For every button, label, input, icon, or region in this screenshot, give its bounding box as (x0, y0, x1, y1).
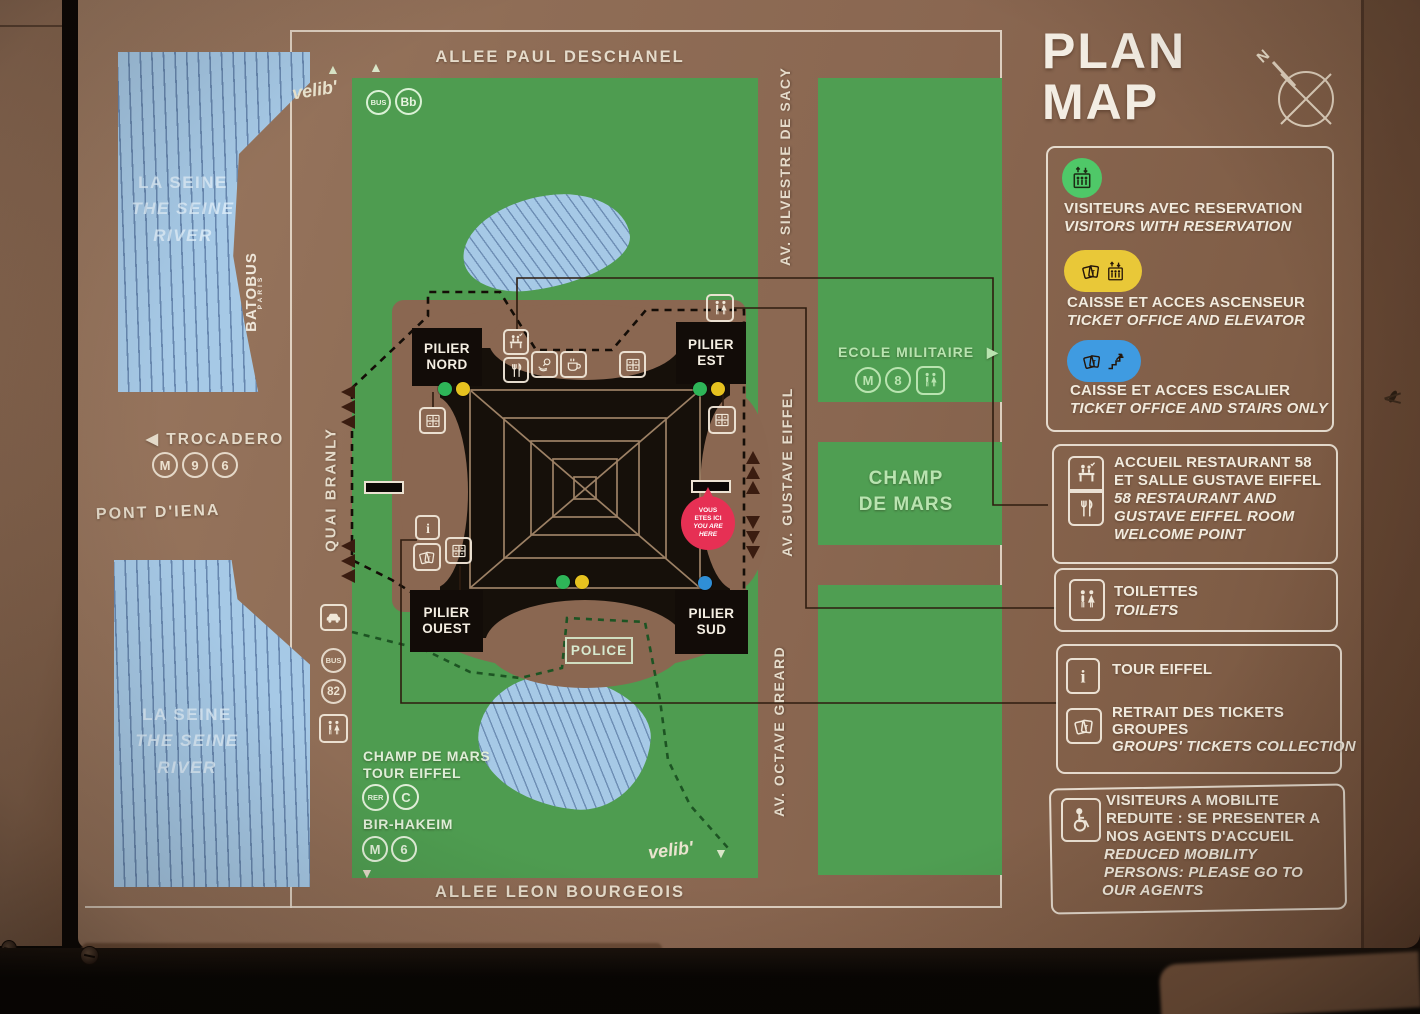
legend-welcome-en3: WELCOME POINT (1114, 526, 1245, 543)
ecole-militaire-direction: ECOLE MILITAIRE ▶ (838, 344, 999, 361)
metro-line-8-badge: 8 (885, 367, 911, 393)
pilier-nord-box: PILIERNORD (412, 328, 482, 386)
arrow-right-icon: ▶ (987, 344, 999, 360)
elevator-icon (1105, 261, 1126, 282)
group-tickets-icon (413, 543, 441, 571)
reservation-access-dot (693, 382, 707, 396)
group-tickets-icon (1066, 708, 1102, 744)
street-allee-paul-deschanel: ALLEE PAUL DESCHANEL (350, 48, 770, 67)
legend-group-tickets-en: GROUPS' TICKETS COLLECTION (1112, 738, 1356, 755)
metro-badge: M (152, 452, 178, 478)
stairs-icon (1106, 351, 1126, 371)
rer-station-name-line2: TOUR EIFFEL (363, 765, 461, 781)
legend-mobility-fr3: NOS AGENTS D'ACCUEIL (1106, 828, 1294, 845)
ticket-elevator-access-dot (575, 575, 589, 589)
legend-group-tickets-fr1: RETRAIT DES TICKETS (1112, 704, 1284, 721)
legend-welcome-fr2: ET SALLE GUSTAVE EIFFEL (1114, 472, 1321, 489)
ticket-elevator-badge (1064, 250, 1142, 292)
arrow-left-icon: ◀ (146, 431, 160, 448)
street-av-octave-greard: AV. OCTAVE GREARD (771, 647, 787, 817)
wheelchair-icon (1061, 798, 1101, 842)
metro-badge: M (855, 367, 881, 393)
street-av-silvestre-de-sacy: AV. SILVESTRE DE SACY (777, 86, 793, 266)
restaurant-icon (1068, 491, 1104, 526)
gift-shop-icon (708, 406, 736, 434)
legend-group-tickets-fr2: GROUPES (1112, 721, 1188, 738)
ticket-elevator-access-dot (711, 382, 725, 396)
reservation-access-dot (438, 382, 452, 396)
pilier-est-box: PILIEREST (676, 322, 746, 384)
ticket-elevator-access-dot (456, 382, 470, 396)
tickets-icon (1082, 351, 1103, 372)
you-are-here-marker: VOUS ETES ICI YOU ARE HERE (681, 496, 735, 550)
toilets-icon (1069, 579, 1105, 621)
rer-badge: RER (362, 784, 389, 811)
metro-line-6-badge: 6 (212, 452, 238, 478)
bus-line-82-badge: 82 (321, 679, 346, 704)
legend-welcome-en2: GUSTAVE EIFFEL ROOM (1114, 508, 1294, 525)
legend-toilets-en: TOILETS (1114, 602, 1178, 619)
legend-elevator-en: TICKET OFFICE AND ELEVATOR (1067, 312, 1305, 329)
arrow-up-icon: ▲ (326, 62, 340, 76)
tickets-icon (1081, 261, 1102, 282)
legend-mobility-en1: REDUCED MOBILITY (1104, 846, 1257, 863)
gift-shop-icon (619, 351, 646, 378)
legend-mobility-fr1: VISITEURS A MOBILITE (1106, 792, 1279, 809)
legend-reservation-fr: VISITEURS AVEC RESERVATION (1064, 200, 1303, 217)
snack-icon (531, 351, 558, 378)
ticket-stairs-badge (1067, 340, 1141, 382)
gift-shop-icon (419, 407, 446, 434)
street-allee-leon-bourgeois: ALLEE LEON BOURGEOIS (350, 883, 770, 902)
street-quai-branly: QUAI BRANLY (323, 415, 340, 565)
elevator-icon (1070, 166, 1094, 190)
legend-welcome-fr1: ACCUEIL RESTAURANT 58 (1114, 454, 1312, 471)
bus-stop-badge: BUS (366, 90, 391, 115)
bus-stop-badge: BUS (321, 648, 346, 673)
legend-mobility-en2: PERSONS: PLEASE GO TO (1104, 864, 1303, 881)
cafe-icon (560, 351, 587, 378)
stairs-access-dot (698, 576, 712, 590)
reservation-access-dot (556, 575, 570, 589)
toilets-icon (319, 714, 348, 743)
rer-station-name-line1: CHAMP DE MARS (363, 748, 490, 764)
legend-reservation-en: VISITORS WITH RESERVATION (1064, 218, 1292, 235)
gift-shop-icon (445, 537, 472, 564)
welcome-desk-icon (1068, 456, 1104, 491)
info-point-icon (1066, 658, 1100, 694)
reservation-elevator-badge (1062, 158, 1102, 198)
street-av-gustave-eiffel: AV. GUSTAVE EIFFEL (779, 387, 795, 557)
legend-tour-eiffel: TOUR EIFFEL (1112, 661, 1212, 678)
rer-line-c-badge: C (393, 784, 419, 810)
legend-stairs-en: TICKET OFFICE AND STAIRS ONLY (1070, 400, 1328, 417)
taxi-icon (320, 604, 347, 631)
metro-line-9-badge: 9 (182, 452, 208, 478)
arrow-down-icon: ▼ (714, 846, 728, 860)
page-title: PLAN MAP (1042, 26, 1186, 128)
balabus-badge: Bb (395, 88, 422, 115)
legend-stairs-fr: CAISSE ET ACCES ESCALIER (1070, 382, 1290, 399)
legend-elevator-fr: CAISSE ET ACCES ASCENSEUR (1067, 294, 1305, 311)
metro-station-name: BIR-HAKEIM (363, 816, 453, 832)
screw-bottom-left (80, 946, 99, 965)
insect (1384, 386, 1402, 408)
pilier-ouest-box: PILIEROUEST (410, 590, 483, 652)
legend-welcome-en1: 58 RESTAURANT AND (1114, 490, 1277, 507)
toilets-icon (916, 366, 945, 395)
champ-de-mars-label: CHAMP DE MARS (838, 466, 974, 517)
arrow-up-icon: ▲ (369, 60, 383, 74)
photo-of-map-sign: LA SEINE THE SEINE RIVER LA SEINE THE SE… (0, 0, 1420, 1014)
info-point-icon (415, 515, 440, 540)
legend-mobility-en3: OUR AGENTS (1102, 882, 1203, 899)
security-gate-west (364, 481, 404, 494)
marker-bubble: VOUS ETES ICI YOU ARE HERE (681, 496, 735, 550)
legend-toilets-fr: TOILETTES (1114, 583, 1198, 600)
metro-badge: M (362, 836, 388, 862)
trocadero-direction: ◀ TROCADERO (146, 430, 284, 449)
compass-rose (1273, 62, 1333, 126)
welcome-desk-icon (503, 329, 529, 355)
restaurant-icon (503, 357, 529, 383)
police-station-box: POLICE (565, 637, 633, 664)
legend-mobility-fr2: REDUITE : SE PRESENTER A (1106, 810, 1320, 827)
toilets-icon (706, 294, 734, 322)
arrow-down-icon: ▼ (360, 866, 374, 880)
metro-line-6-badge: 6 (391, 836, 417, 862)
pilier-sud-box: PILIERSUD (675, 590, 748, 654)
